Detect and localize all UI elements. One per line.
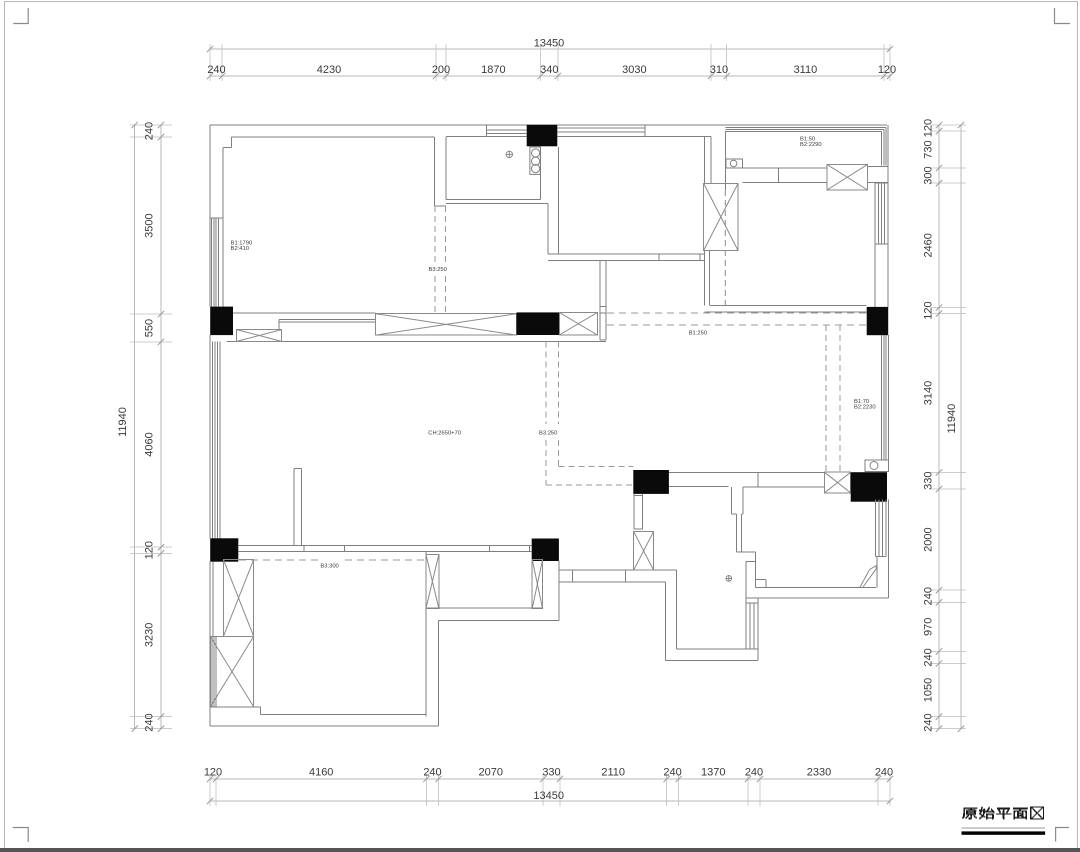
svg-text:1870: 1870	[481, 64, 505, 76]
svg-text:3030: 3030	[622, 64, 646, 76]
svg-text:2000: 2000	[923, 527, 935, 551]
svg-text:240: 240	[207, 64, 225, 76]
svg-text:B3:300: B3:300	[320, 563, 338, 569]
svg-text:3500: 3500	[144, 213, 156, 237]
svg-text:120: 120	[878, 64, 896, 76]
svg-text:120: 120	[923, 119, 935, 137]
svg-text:340: 340	[540, 64, 558, 76]
svg-text:2110: 2110	[601, 767, 625, 779]
svg-text:4160: 4160	[309, 767, 333, 779]
svg-text:B3:250: B3:250	[539, 431, 557, 437]
svg-text:330: 330	[923, 472, 935, 490]
svg-text:13450: 13450	[533, 790, 564, 802]
svg-text:1050: 1050	[923, 678, 935, 702]
svg-text:240: 240	[144, 713, 156, 731]
svg-text:B2:2230: B2:2230	[854, 404, 876, 410]
svg-text:200: 200	[432, 64, 450, 76]
svg-text:730: 730	[923, 140, 935, 158]
svg-text:240: 240	[745, 767, 763, 779]
svg-text:B2:410: B2:410	[231, 246, 249, 252]
svg-text:240: 240	[423, 767, 441, 779]
svg-text:330: 330	[542, 767, 560, 779]
svg-text:120: 120	[923, 301, 935, 319]
svg-text:240: 240	[923, 648, 935, 666]
svg-text:240: 240	[923, 587, 935, 605]
svg-text:13450: 13450	[534, 38, 565, 50]
svg-text:4230: 4230	[317, 64, 341, 76]
svg-text:300: 300	[923, 166, 935, 184]
svg-text:310: 310	[710, 64, 728, 76]
svg-text:2460: 2460	[923, 233, 935, 257]
svg-text:1370: 1370	[701, 767, 725, 779]
svg-text:3230: 3230	[144, 623, 156, 647]
svg-text:970: 970	[923, 618, 935, 636]
svg-text:2330: 2330	[807, 767, 831, 779]
svg-text:550: 550	[144, 319, 156, 337]
svg-text:11940: 11940	[117, 407, 129, 437]
svg-text:B3:250: B3:250	[429, 267, 447, 273]
svg-text:240: 240	[923, 713, 935, 731]
svg-text:240: 240	[875, 767, 893, 779]
svg-text:120: 120	[144, 541, 156, 559]
svg-text:120: 120	[204, 767, 222, 779]
svg-text:2070: 2070	[479, 767, 503, 779]
svg-text:3110: 3110	[794, 64, 818, 76]
svg-text:B1:250: B1:250	[689, 330, 707, 336]
svg-text:11940: 11940	[946, 404, 958, 434]
svg-text:3140: 3140	[923, 381, 935, 405]
svg-text:240: 240	[144, 122, 156, 140]
svg-text:4060: 4060	[144, 432, 156, 456]
svg-text:CH:2650+70: CH:2650+70	[428, 431, 461, 437]
svg-text:240: 240	[663, 767, 681, 779]
svg-text:B2:2290: B2:2290	[800, 142, 822, 148]
